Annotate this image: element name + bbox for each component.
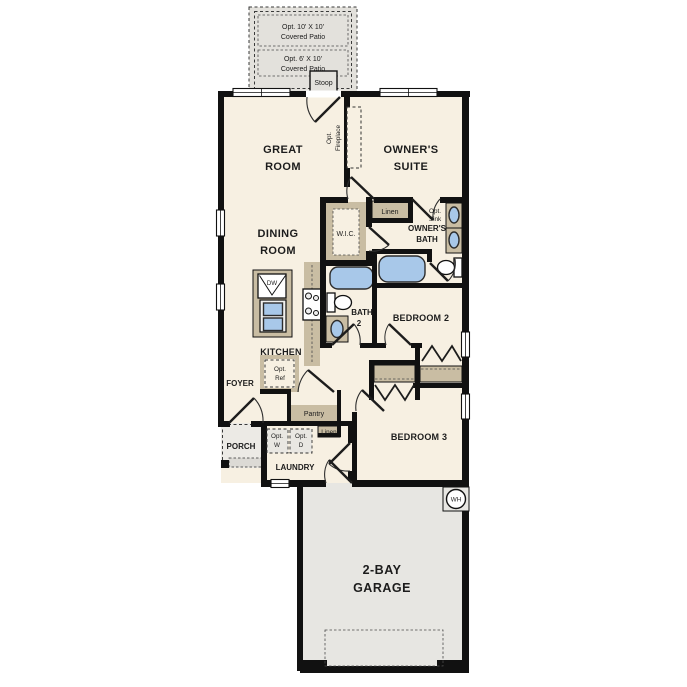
wall-wic-right-lower <box>366 251 372 266</box>
greatroom-label-1: GREAT <box>263 144 303 156</box>
suite-label-2: SUITE <box>394 161 428 173</box>
garage-label-2: GARAGE <box>353 581 411 595</box>
patio10-label-line1: Opt. 10' X 10' <box>282 24 324 31</box>
wall-bath2-bottom-a <box>320 343 332 348</box>
suite-label-1: OWNER'S <box>384 144 439 156</box>
wall-garage-corner-right <box>437 660 464 673</box>
water-heater-label: WH <box>451 497 462 504</box>
wall-suite-bottom-c <box>440 197 466 203</box>
floor-plan-svg: Opt. 10' X 10' Covered Patio Opt. 6' X 1… <box>0 0 687 687</box>
bath2-tub <box>330 267 373 289</box>
floor-plan-page: Opt. 10' X 10' Covered Patio Opt. 6' X 1… <box>0 0 687 687</box>
wall-porch-stub-left <box>218 421 230 427</box>
stoop-label: Stoop <box>314 80 332 87</box>
opt-dryer-label-1: Opt. <box>295 433 307 440</box>
bedroom2-label: BEDROOM 2 <box>393 313 449 323</box>
linen1-label: Linen <box>381 209 398 216</box>
wall-bed2-top <box>372 283 469 288</box>
dishwasher-label: DW <box>267 280 278 287</box>
bed2-closet-shelf <box>420 366 462 382</box>
patio6-label-line1: Opt. 6' X 10' <box>284 56 322 63</box>
wall-suite-bottom-b <box>374 197 412 203</box>
foyer-label: FOYER <box>226 379 254 388</box>
wall-exterior-left <box>218 91 224 427</box>
opt-fireplace-box <box>347 107 361 168</box>
wall-garage-corner-left <box>300 660 327 673</box>
wall-pantry-right <box>337 390 341 437</box>
wall-pantry-left <box>287 390 291 421</box>
wall-bed3-top <box>413 383 466 388</box>
burner-2 <box>314 296 319 301</box>
wall-wic-kitchen-left <box>320 197 326 347</box>
burner-3 <box>306 308 312 314</box>
wall-bed3-closet-left <box>369 360 374 400</box>
wall-bed2-bottom-a <box>377 343 386 348</box>
covered-patio-group: Opt. 10' X 10' Covered Patio Opt. 6' X 1… <box>249 7 357 93</box>
window-greatroom <box>233 89 290 97</box>
owners-bath-label-2: BATH <box>416 235 438 244</box>
wall-bath2-bottom-b <box>360 343 377 348</box>
window-laundry <box>271 480 289 488</box>
wic-label: W.I.C. <box>336 231 355 238</box>
window-left-2 <box>217 284 225 310</box>
wall-linen1-bottom <box>366 218 413 223</box>
opt-dryer-label-2: D <box>299 442 304 449</box>
porch-post <box>221 460 229 468</box>
kitchen-sink-basin-1 <box>264 303 283 316</box>
wall-garage-left <box>297 483 303 671</box>
kitchen-label: KITCHEN <box>260 347 301 357</box>
porch-step <box>229 458 263 467</box>
window-owners-suite <box>380 89 437 97</box>
owners-sink-2 <box>449 232 459 248</box>
window-bedroom3 <box>462 394 470 419</box>
wall-laundry-top <box>261 421 348 426</box>
owners-sink-1 <box>449 207 459 223</box>
wall-foyer-nook-bottom <box>260 389 291 394</box>
front-door-opening <box>306 91 341 98</box>
fireplace-label-line1: Opt. <box>326 132 333 144</box>
wall-house-bottom-a <box>303 480 326 487</box>
patio10-label-line2: Covered Patio <box>281 34 325 41</box>
fireplace-label-line2: Fireplace <box>335 125 342 151</box>
laundry-label: LAUNDRY <box>276 463 315 472</box>
opt-sink-label-1: Opt. <box>429 208 441 215</box>
wall-laundry-right-a <box>348 421 353 443</box>
window-left-1 <box>217 210 225 236</box>
garage-label-1: 2-BAY <box>363 563 402 577</box>
owners-bath-label-1: OWNER'S <box>408 224 447 233</box>
opt-sink-label-2: Sink <box>429 216 442 223</box>
bath2-toilet-bowl <box>335 296 352 310</box>
wall-exterior-right <box>462 91 469 673</box>
dining-label-2: ROOM <box>260 245 296 257</box>
ref-nook-floor <box>264 359 295 388</box>
porch-group: PORCH <box>221 423 263 468</box>
wall-closet-divider <box>415 343 420 400</box>
porch-label: PORCH <box>227 442 256 451</box>
pantry-label: Pantry <box>304 411 325 418</box>
bath2-label-2: 2 <box>357 319 362 328</box>
bath2-toilet-tank <box>327 293 335 312</box>
owners-tub <box>379 256 425 282</box>
opt-ref-label-2: Ref <box>275 375 285 382</box>
burner-4 <box>314 311 319 316</box>
linen2-label: Linen <box>321 429 337 436</box>
wall-bed3-closet-top <box>369 360 420 365</box>
wall-toilet-nook <box>427 249 432 262</box>
bedroom3-label: BEDROOM 3 <box>391 432 447 442</box>
opt-ref-label-1: Opt. <box>274 366 286 373</box>
cooktop <box>303 289 321 320</box>
dining-label-1: DINING <box>258 228 299 240</box>
window-bedroom2 <box>462 332 470 357</box>
kitchen-sink-basin-2 <box>264 318 283 331</box>
bath2-label-1: BATH <box>351 308 373 317</box>
bed3-closet-shelf <box>374 365 415 382</box>
opt-washer-label-2: W <box>274 442 280 449</box>
wall-bath2-right <box>372 249 377 348</box>
opt-washer-label-1: Opt. <box>271 433 283 440</box>
greatroom-label-2: ROOM <box>265 161 301 173</box>
wall-house-bottom-b <box>352 480 462 487</box>
burner-1 <box>306 293 312 299</box>
wall-laundry-left <box>261 421 267 484</box>
garage-floor <box>300 483 465 671</box>
